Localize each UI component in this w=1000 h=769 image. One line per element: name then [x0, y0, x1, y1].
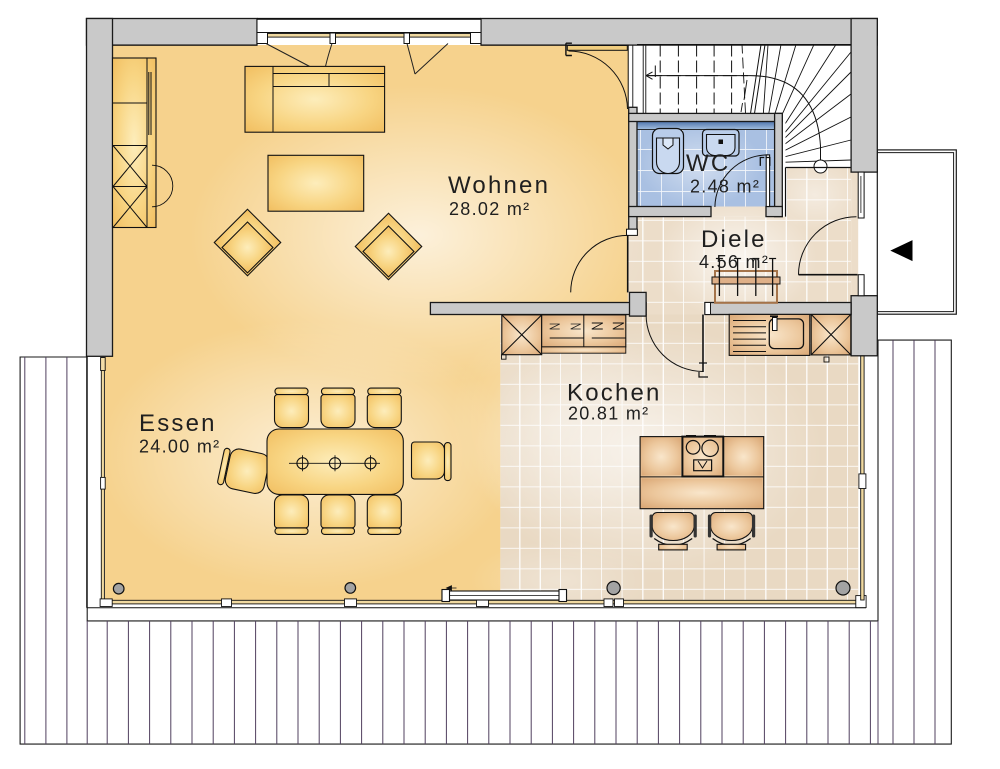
- svg-text:24.00 m²: 24.00 m²: [139, 437, 220, 457]
- svg-text:20.81 m²: 20.81 m²: [568, 404, 649, 424]
- svg-text:WC: WC: [686, 150, 730, 177]
- svg-text:Kochen: Kochen: [567, 380, 662, 407]
- svg-text:4.56 m²: 4.56 m²: [699, 252, 769, 272]
- svg-text:Wohnen: Wohnen: [448, 172, 550, 199]
- svg-text:Diele: Diele: [701, 226, 767, 253]
- svg-text:2.48 m²: 2.48 m²: [690, 177, 760, 197]
- svg-text:28.02 m²: 28.02 m²: [449, 199, 530, 219]
- svg-text:Essen: Essen: [139, 410, 217, 437]
